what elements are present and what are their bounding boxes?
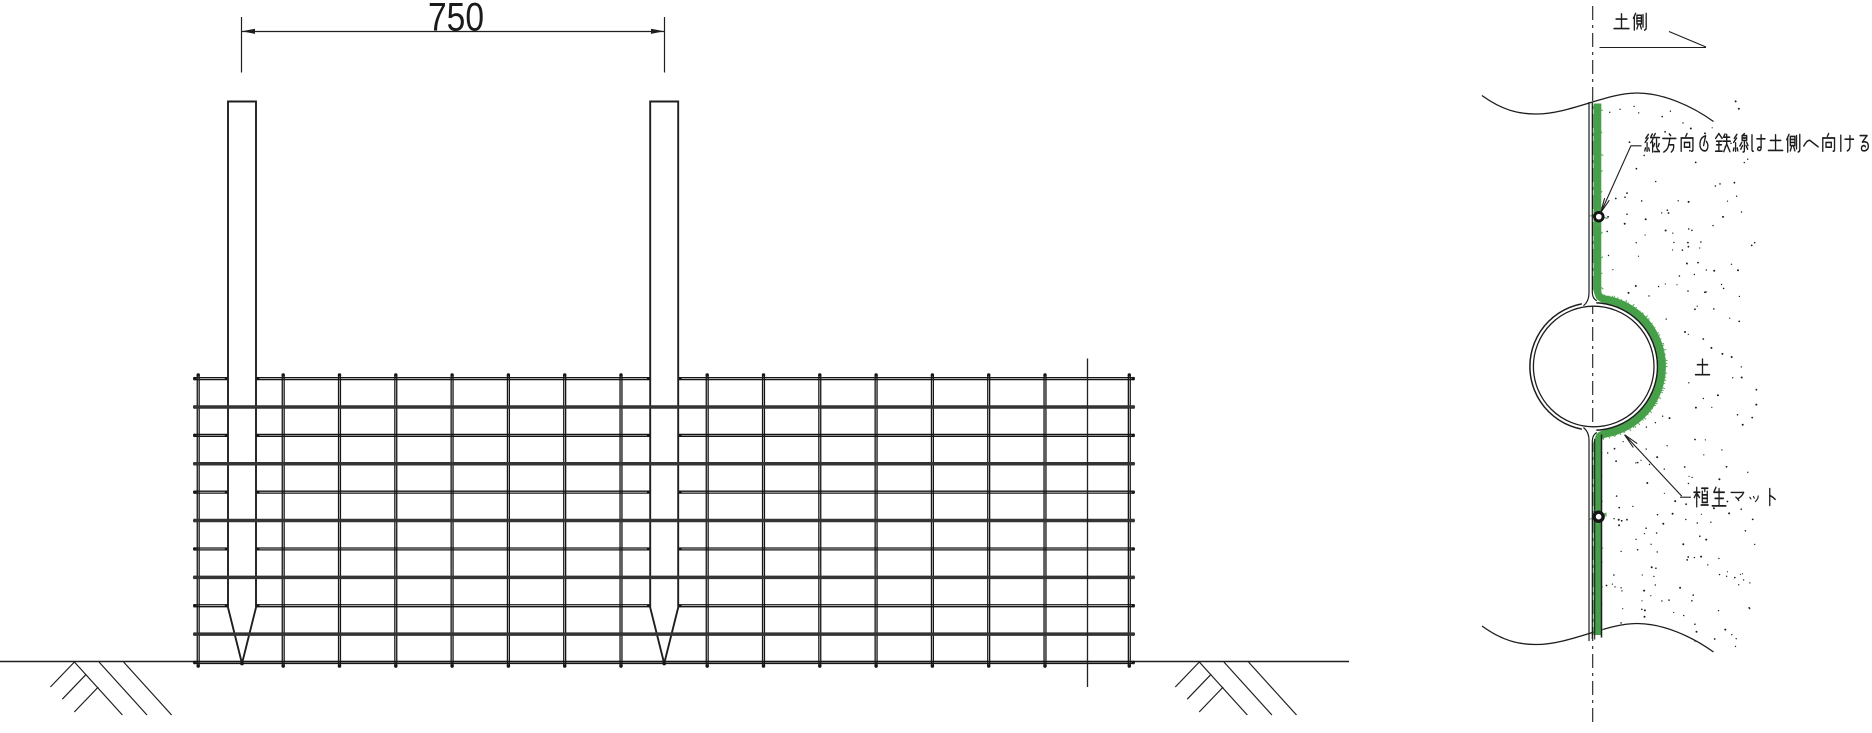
svg-text:750: 750: [428, 0, 484, 40]
